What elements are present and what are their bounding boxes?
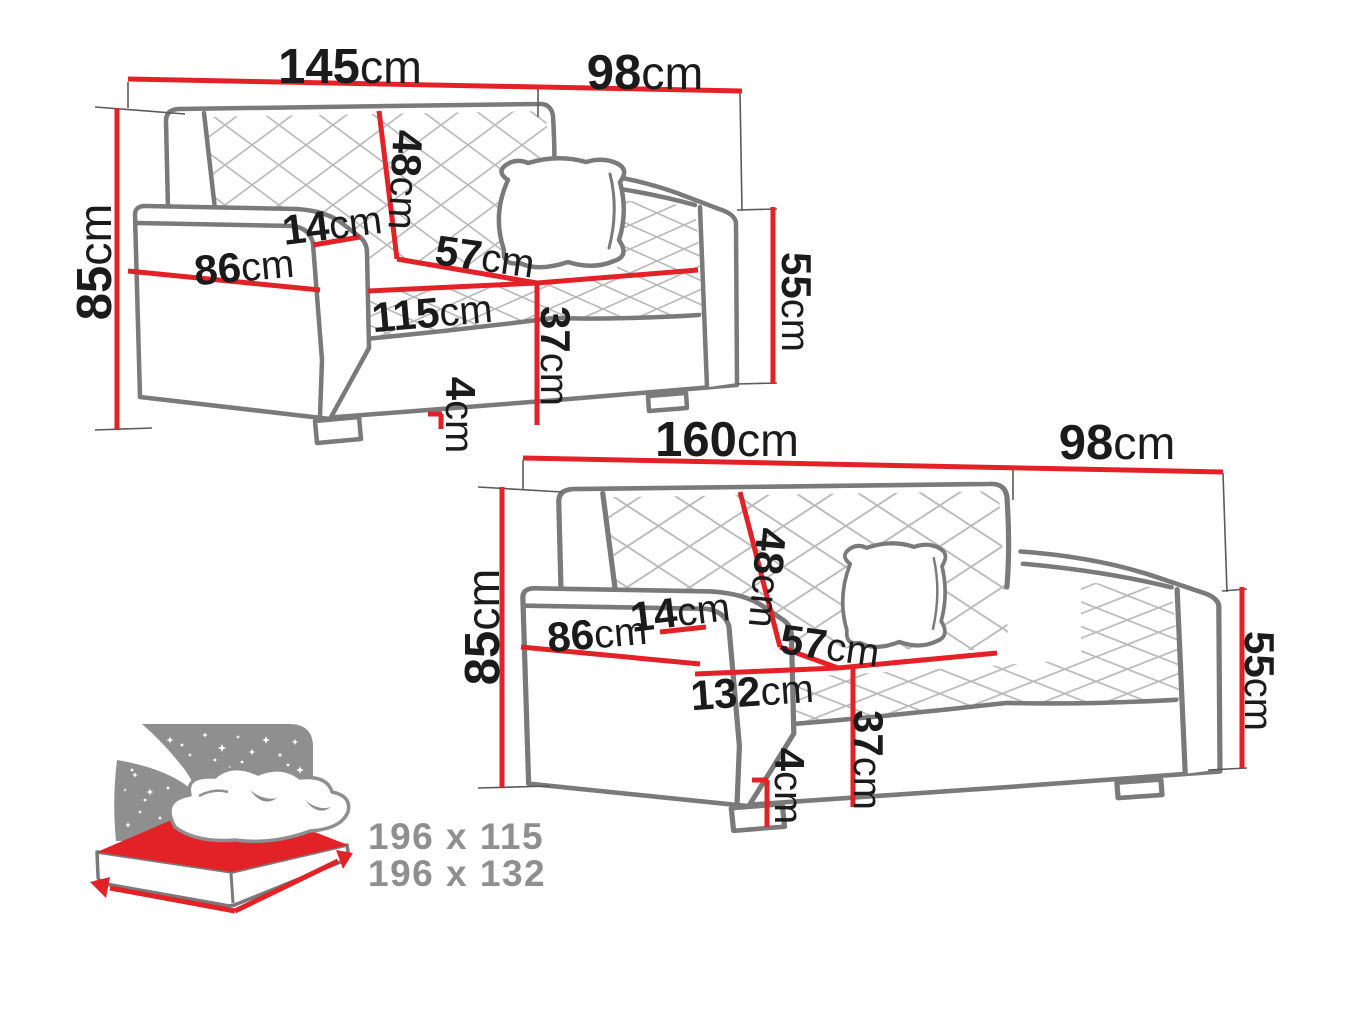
dim-sofa-small-armrest-depth: 86cm <box>192 239 296 295</box>
svg-text:4cm: 4cm <box>437 377 484 454</box>
dim-sofa-small-seat-height: 37cm <box>532 306 579 406</box>
svg-text:55cm: 55cm <box>773 252 820 352</box>
svg-text:48cm: 48cm <box>379 129 431 231</box>
dim-sofa-small-seat-width: 115cm <box>370 284 495 341</box>
bed-size-large-label: 196 x 132 <box>368 853 546 894</box>
dim-sofa-small-height: 85cm <box>68 204 122 321</box>
svg-text:86cm: 86cm <box>545 606 649 662</box>
svg-text:86cm: 86cm <box>192 239 296 295</box>
dim-sofa-large-seat-width: 132cm <box>689 664 815 719</box>
furniture-dimension-sheet: 145cm 98cm 85cm 48cm 14cm 86cm 57cm 115c… <box>0 0 1346 1009</box>
sofa-bed-function-icon: 196 x 115 196 x 132 <box>90 724 546 911</box>
dim-sofa-large-leg-height: 4cm <box>766 748 813 825</box>
dim-sofa-small-leg-height: 4cm <box>437 377 484 454</box>
dim-sofa-small-armrest-height: 55cm <box>773 252 820 352</box>
bed-icon-blanket <box>170 769 349 842</box>
dim-sofa-small-width: 145cm <box>278 40 422 94</box>
dimension-diagram-canvas: 145cm 98cm 85cm 48cm 14cm 86cm 57cm 115c… <box>0 0 1346 1009</box>
dim-sofa-large-armrest-depth: 86cm <box>545 606 649 662</box>
svg-text:85cm: 85cm <box>68 204 122 321</box>
dim-sofa-large-height: 85cm <box>456 569 510 686</box>
bed-icon-mattress-seam <box>231 873 233 903</box>
svg-text:85cm: 85cm <box>456 569 510 686</box>
svg-text:37cm: 37cm <box>532 306 579 406</box>
svg-text:55cm: 55cm <box>1236 631 1283 731</box>
dim-sofa-large-armrest-height: 55cm <box>1236 631 1283 731</box>
dim-sofa-large-depth: 98cm <box>1059 416 1176 470</box>
svg-text:115cm: 115cm <box>370 284 495 341</box>
dim-sofa-small-depth: 98cm <box>587 46 704 100</box>
dim-sofa-small-backrest-height: 48cm <box>379 129 431 231</box>
dim-sofa-large-seat-height: 37cm <box>845 710 892 810</box>
svg-text:37cm: 37cm <box>845 710 892 810</box>
dim-sofa-large-width: 160cm <box>655 413 799 467</box>
bed-size-small-label: 196 x 115 <box>368 816 544 857</box>
svg-text:132cm: 132cm <box>689 664 815 719</box>
svg-text:4cm: 4cm <box>766 748 813 825</box>
